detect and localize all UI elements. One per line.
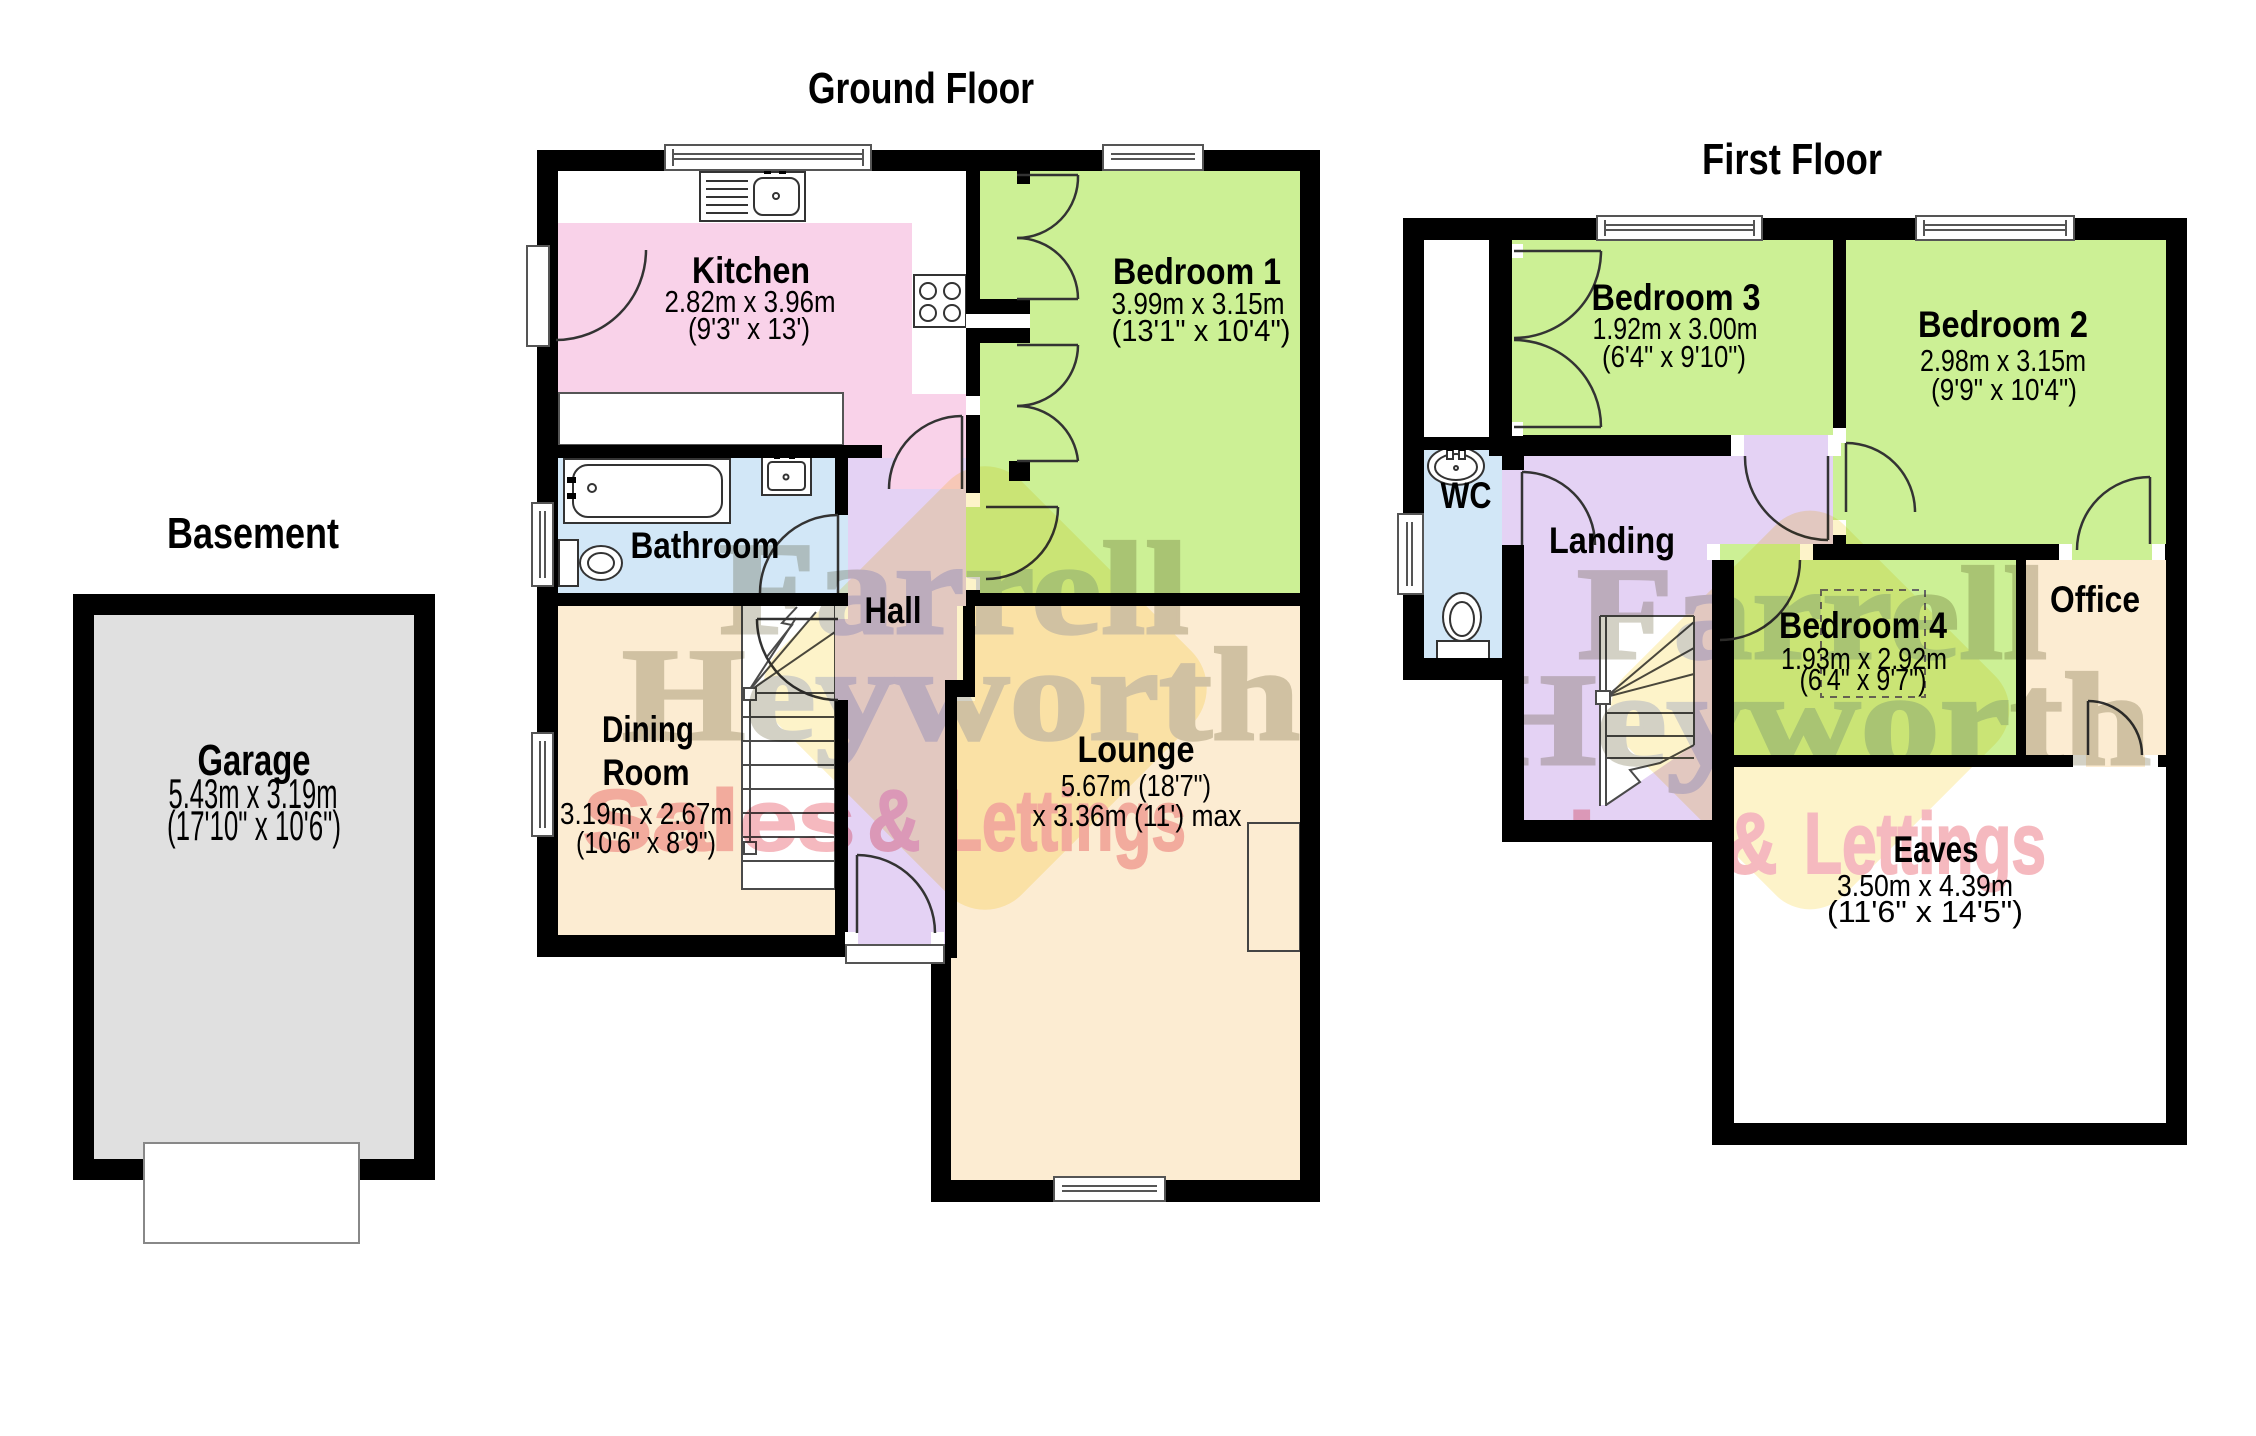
svg-text:(6'4" x 9'7"): (6'4" x 9'7"): [1800, 662, 1927, 697]
svg-text:First Floor: First Floor: [1702, 135, 1882, 184]
svg-text:Bathroom: Bathroom: [631, 525, 780, 566]
svg-text:(17'10" x 10'6"): (17'10" x 10'6"): [167, 802, 341, 849]
svg-text:(9'9" x 10'4"): (9'9" x 10'4"): [1931, 372, 2077, 407]
svg-text:Bedroom 4: Bedroom 4: [1779, 605, 1947, 646]
svg-text:Basement: Basement: [167, 509, 339, 558]
svg-text:Bedroom 2: Bedroom 2: [1918, 304, 2088, 345]
svg-text:Room: Room: [603, 752, 690, 793]
svg-text:Office: Office: [2050, 579, 2140, 620]
svg-text:(13'1" x 10'4"): (13'1" x 10'4"): [1112, 313, 1291, 348]
svg-text:Heyworth: Heyworth: [622, 621, 1300, 768]
svg-text:Dining: Dining: [602, 709, 694, 750]
svg-text:(6'4" x 9'10"): (6'4" x 9'10"): [1602, 339, 1746, 374]
svg-text:(9'3" x 13'): (9'3" x 13'): [688, 311, 810, 346]
svg-text:Landing: Landing: [1549, 520, 1675, 561]
svg-text:Eaves: Eaves: [1894, 829, 1979, 870]
svg-text:WC: WC: [1441, 475, 1492, 516]
svg-text:&: &: [868, 773, 921, 869]
svg-text:Lounge: Lounge: [1078, 729, 1195, 770]
svg-text:(11'6" x 14'5"): (11'6" x 14'5"): [1827, 894, 2023, 929]
svg-text:Ground Floor: Ground Floor: [808, 64, 1034, 113]
svg-text:&: &: [1725, 796, 1778, 892]
svg-text:(10'6" x 8'9"): (10'6" x 8'9"): [576, 825, 716, 860]
svg-text:Hall: Hall: [865, 590, 922, 631]
svg-text:x 3.36m (11') max: x 3.36m (11') max: [1033, 798, 1242, 833]
